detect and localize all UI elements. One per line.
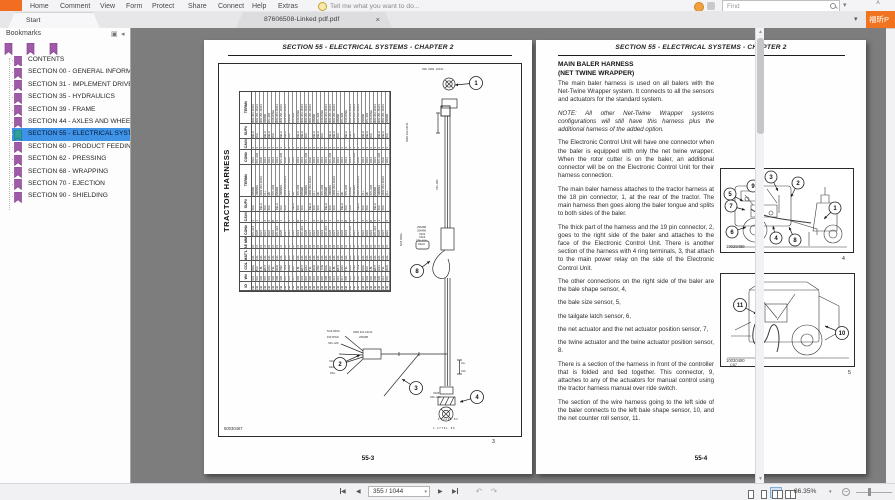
bookmark-icon	[14, 117, 22, 128]
baler-right-side-figure: 329571648 10029489	[720, 168, 854, 253]
svg-text:PAC: PAC	[330, 371, 335, 375]
header-rule	[558, 55, 845, 56]
bookmark-icon	[14, 130, 22, 141]
bookmark-item-7[interactable]: SECTION 60 - PRODUCT FEEDING	[12, 141, 130, 153]
bookmark-icon	[14, 68, 22, 79]
pdf-page-right: SECTION 55 - ELECTRICAL SYSTEMS - CHAPTE…	[536, 40, 866, 474]
bookmarks-panel-header: Bookmarks ▣ ◂	[0, 28, 130, 41]
menu-item-protect[interactable]: Protect	[150, 0, 176, 11]
bookmark-icon	[14, 105, 22, 116]
bookmarks-panel-title: Bookmarks	[6, 30, 41, 37]
bookmark-icon	[14, 93, 22, 104]
bookmark-item-0[interactable]: CONTENTS	[12, 54, 130, 66]
svg-text:11: 11	[737, 303, 744, 309]
first-page-button[interactable]: ◀	[340, 484, 346, 500]
baler-drawing: 1110	[721, 274, 854, 366]
brand-button[interactable]: 福昕P	[866, 11, 895, 28]
bookmark-icon	[14, 80, 22, 91]
zoom-dropdown-icon[interactable]: ▾	[829, 484, 832, 500]
bookmark-icon	[14, 167, 22, 178]
app-logo-icon[interactable]	[0, 0, 22, 11]
svg-text:1·· 2 7 7 8 1 ·· 8 8: 1·· 2 7 7 8 1 ·· 8 8	[433, 426, 455, 430]
figure-number: 4	[842, 256, 845, 262]
next-page-button[interactable]: ▶	[438, 484, 443, 500]
svg-text:SPL-014: SPL-014	[416, 239, 427, 243]
svg-text:296488: 296488	[417, 225, 426, 229]
tab-document-label: 87606508-Linked pdf.pdf	[264, 16, 339, 23]
bookmark-icon	[14, 192, 22, 203]
menu-item-extras[interactable]: Extras	[276, 0, 300, 11]
svg-text:296488: 296488	[359, 335, 368, 339]
scroll-up-icon[interactable]: ▲	[757, 29, 764, 35]
zoom-out-icon[interactable]: −	[842, 488, 850, 496]
svg-text:5/16 RING: 5/16 RING	[399, 233, 403, 246]
figure-number: 5	[848, 370, 851, 376]
menu-item-view[interactable]: View	[98, 0, 117, 11]
bookmarks-panel: Bookmarks ▣ ◂ CONTENTSSECTION 00 - GENER…	[0, 28, 131, 483]
paragraph-4: The thick part of the harness and the 19…	[558, 224, 714, 273]
tractor-harness-figure: TRACTOR HARNESS TERM#0482 203-161410482 …	[218, 63, 522, 437]
bookmark-label: SECTION 70 - EJECTION	[28, 180, 105, 187]
bookmark-item-4[interactable]: SECTION 39 - FRAME	[12, 104, 130, 116]
vertical-scrollbar[interactable]: ▲ ▼	[755, 28, 764, 483]
bookmark-label: SECTION 68 - WRAPPING	[28, 168, 108, 175]
panel-options-icon[interactable]: ▣	[111, 30, 118, 38]
previous-page-button[interactable]: ◀	[356, 484, 361, 500]
tab-list-dropdown-icon[interactable]: ▾	[854, 15, 858, 23]
figure-sub-id: C87	[730, 363, 737, 367]
scroll-down-icon[interactable]: ▼	[757, 476, 764, 482]
svg-text:298· 0482 ·16141 ··: 298· 0482 ·16141 ··	[422, 67, 446, 71]
figure-image-id: 10029489	[726, 244, 745, 249]
bookmark-label: CONTENTS	[28, 56, 64, 63]
section-heading: MAIN BALER HARNESS	[558, 61, 633, 68]
bookmark-label: SECTION 62 - PRESSING	[28, 155, 106, 162]
paragraph-9: the twine actuator and the twine actuato…	[558, 339, 714, 355]
page-number-value: 355 / 1044	[373, 487, 403, 497]
pdf-page-left: SECTION 55 - ELECTRICAL SYSTEMS - CHAPTE…	[204, 40, 532, 474]
close-tab-icon[interactable]: ×	[376, 12, 380, 28]
bookmark-icon	[14, 155, 22, 166]
bookmarks-toolbar	[4, 42, 67, 54]
previous-view-icon[interactable]: ↶	[474, 487, 484, 497]
notification-icon[interactable]	[707, 2, 715, 10]
harness-diagram: 298· 0482 ·16141 ··0482 201-16141SPL-004…	[219, 64, 521, 436]
bookmark-label: SECTION 35 - HYDRAULICS	[28, 93, 115, 100]
collapse-toolbar-icon[interactable]: ˄	[876, 0, 880, 7]
last-page-button[interactable]: ▶	[452, 484, 458, 500]
main-area: Bookmarks ▣ ◂ CONTENTSSECTION 00 - GENER…	[0, 28, 895, 483]
svg-text:0482 201-16141: 0482 201-16141	[405, 122, 409, 142]
zoom-level-value[interactable]: 86.35%	[794, 484, 816, 500]
zoom-slider[interactable]	[856, 492, 892, 493]
bookmark-item-11[interactable]: SECTION 90 - SHIELDING	[12, 190, 130, 202]
bookmark-icon	[14, 142, 22, 153]
page-number-input[interactable]: 355 / 1044 ▾	[368, 486, 430, 497]
bookmark-item-10[interactable]: SECTION 70 - EJECTION	[12, 178, 130, 190]
menu-item-connect[interactable]: Connect	[216, 0, 246, 11]
bookmark-icon	[14, 56, 22, 67]
menu-item-form[interactable]: Form	[124, 0, 144, 11]
advanced-search-icon[interactable]: ▾	[843, 1, 847, 9]
section-subheading: (NET TWINE WRAPPER)	[558, 70, 634, 77]
bookmark-icon	[14, 179, 22, 190]
page-dropdown-icon[interactable]: ▾	[424, 487, 427, 497]
tab-start-label: Start	[26, 17, 40, 24]
paragraph-6: the bale size sensor, 5,	[558, 299, 714, 307]
paragraph-1: NOTE: All other Net-Twine Wrapper system…	[558, 110, 714, 135]
menu-item-home[interactable]: Home	[28, 0, 51, 11]
svg-text:31b: 31b	[461, 369, 466, 373]
header-rule	[228, 55, 512, 56]
paragraph-11: The section of the wire harness going to…	[558, 399, 714, 424]
paragraph-7: the tailgate latch sensor, 6,	[558, 313, 714, 321]
paragraph-2: The Electronic Control Unit will have on…	[558, 139, 714, 180]
svg-text:5/16 RING: 5/16 RING	[327, 329, 340, 333]
svg-text:SPL-413: SPL-413	[430, 395, 441, 399]
scrollbar-thumb[interactable]	[757, 38, 764, 134]
svg-text:21+: 21+	[461, 361, 466, 365]
search-icon	[830, 3, 836, 9]
paragraph-0: The main baler harness is used on all ba…	[558, 80, 714, 105]
menu-item-share[interactable]: Share	[186, 0, 209, 11]
bookmark-label: SECTION 44 - AXLES AND WHEELS	[28, 118, 130, 125]
svg-text:SPL-004: SPL-004	[435, 179, 439, 190]
bookmark-label: SECTION 31 - IMPLEMENT DRIVELINE	[28, 81, 130, 88]
left-page-number: 55-3	[204, 455, 532, 462]
paragraph-10: There is a section of the harness in fro…	[558, 361, 714, 394]
svg-text:296489: 296489	[417, 228, 426, 232]
assistant-bulb-icon	[318, 2, 327, 11]
bookmark-item-8[interactable]: SECTION 62 - PRESSING	[12, 153, 130, 165]
paragraph-5: The other connections on the right side …	[558, 278, 714, 294]
svg-text:10: 10	[839, 331, 846, 337]
svg-text:DELU: DELU	[418, 242, 425, 246]
body-text-column: The main baler harness is used on all ba…	[558, 80, 714, 428]
continuous-view-icon[interactable]	[757, 487, 769, 498]
find-placeholder: Find	[727, 1, 740, 11]
menu-item-comment[interactable]: Comment	[58, 0, 92, 11]
figure-image-id: 50030467	[224, 426, 243, 431]
status-bar: ◀ ◀ 355 / 1044 ▾ ▶ ▶ ↶ ↷ 86.35% ▾ −	[0, 483, 895, 500]
assistant-hint[interactable]: Tell me what you want to do...	[330, 0, 420, 11]
bookmark-list: CONTENTSSECTION 00 - GENERAL INFORMATIOS…	[0, 54, 130, 203]
svg-text:X022: X022	[419, 232, 426, 236]
svg-text:#16 RING: #16 RING	[327, 335, 339, 339]
bookmark-item-2[interactable]: SECTION 31 - IMPLEMENT DRIVELINE	[12, 79, 130, 91]
baler-drawing: 329571648	[721, 169, 853, 252]
right-page-number: 55-4	[536, 455, 866, 462]
figure-number: 3	[492, 439, 495, 445]
panel-collapse-icon[interactable]: ◂	[121, 30, 125, 38]
svg-text:·5 ·1 2 2 3 1 ··8 2: ·5 ·1 2 2 3 1 ··8 2	[437, 417, 458, 421]
zoom-slider-thumb[interactable]	[868, 488, 871, 496]
left-page-header: SECTION 55 - ELECTRICAL SYSTEMS - CHAPTE…	[204, 44, 532, 51]
paragraph-8: the net actuator and the net actuator po…	[558, 326, 714, 334]
bookmark-item-6[interactable]: SECTION 55 - ELECTRICAL SYSTEMS	[12, 128, 130, 140]
bookmark-label: SECTION 60 - PRODUCT FEEDING	[28, 143, 130, 150]
bookmark-label: SECTION 39 - FRAME	[28, 106, 95, 113]
tab-bar: Start 87606508-Linked pdf.pdf × ▾ 福昕P	[0, 11, 895, 29]
svg-text:SPL-429: SPL-429	[328, 341, 339, 345]
right-page-header: SECTION 55 - ELECTRICAL SYSTEMS - CHAPTE…	[536, 44, 866, 51]
baler-left-side-figure: 1110 10030490 C87	[720, 273, 855, 367]
tab-start[interactable]: Start	[8, 12, 100, 28]
bookmark-label: SECTION 00 - GENERAL INFORMATIO	[28, 68, 130, 75]
svg-text:X023: X023	[419, 235, 426, 239]
bookmark-item-5[interactable]: SECTION 44 - AXLES AND WHEELS	[12, 116, 130, 128]
foxit-pdf-window: HomeCommentViewFormProtectShareConnectHe…	[0, 0, 895, 500]
svg-text:0482 201-16141: 0482 201-16141	[353, 330, 373, 334]
facing-view-icon[interactable]	[770, 487, 782, 498]
single-page-view-icon[interactable]	[744, 487, 756, 498]
svg-text:X025: X025	[433, 391, 440, 395]
bookmark-label: SECTION 55 - ELECTRICAL SYSTEMS	[28, 130, 130, 137]
paragraph-3: The main baler harness attaches to the t…	[558, 186, 714, 219]
document-area[interactable]: SECTION 55 - ELECTRICAL SYSTEMS - CHAPTE…	[131, 28, 886, 483]
next-view-icon[interactable]: ↷	[489, 487, 499, 497]
bookmark-label: SECTION 90 - SHIELDING	[28, 192, 108, 199]
tab-document[interactable]: 87606508-Linked pdf.pdf ×	[236, 12, 392, 28]
bookmark-item-3[interactable]: SECTION 35 - HYDRAULICS	[12, 91, 130, 103]
bookmark-item-1[interactable]: SECTION 00 - GENERAL INFORMATIO	[12, 66, 130, 78]
menu-item-help[interactable]: Help	[250, 0, 268, 11]
bookmark-item-9[interactable]: SECTION 68 - WRAPPING	[12, 166, 130, 178]
